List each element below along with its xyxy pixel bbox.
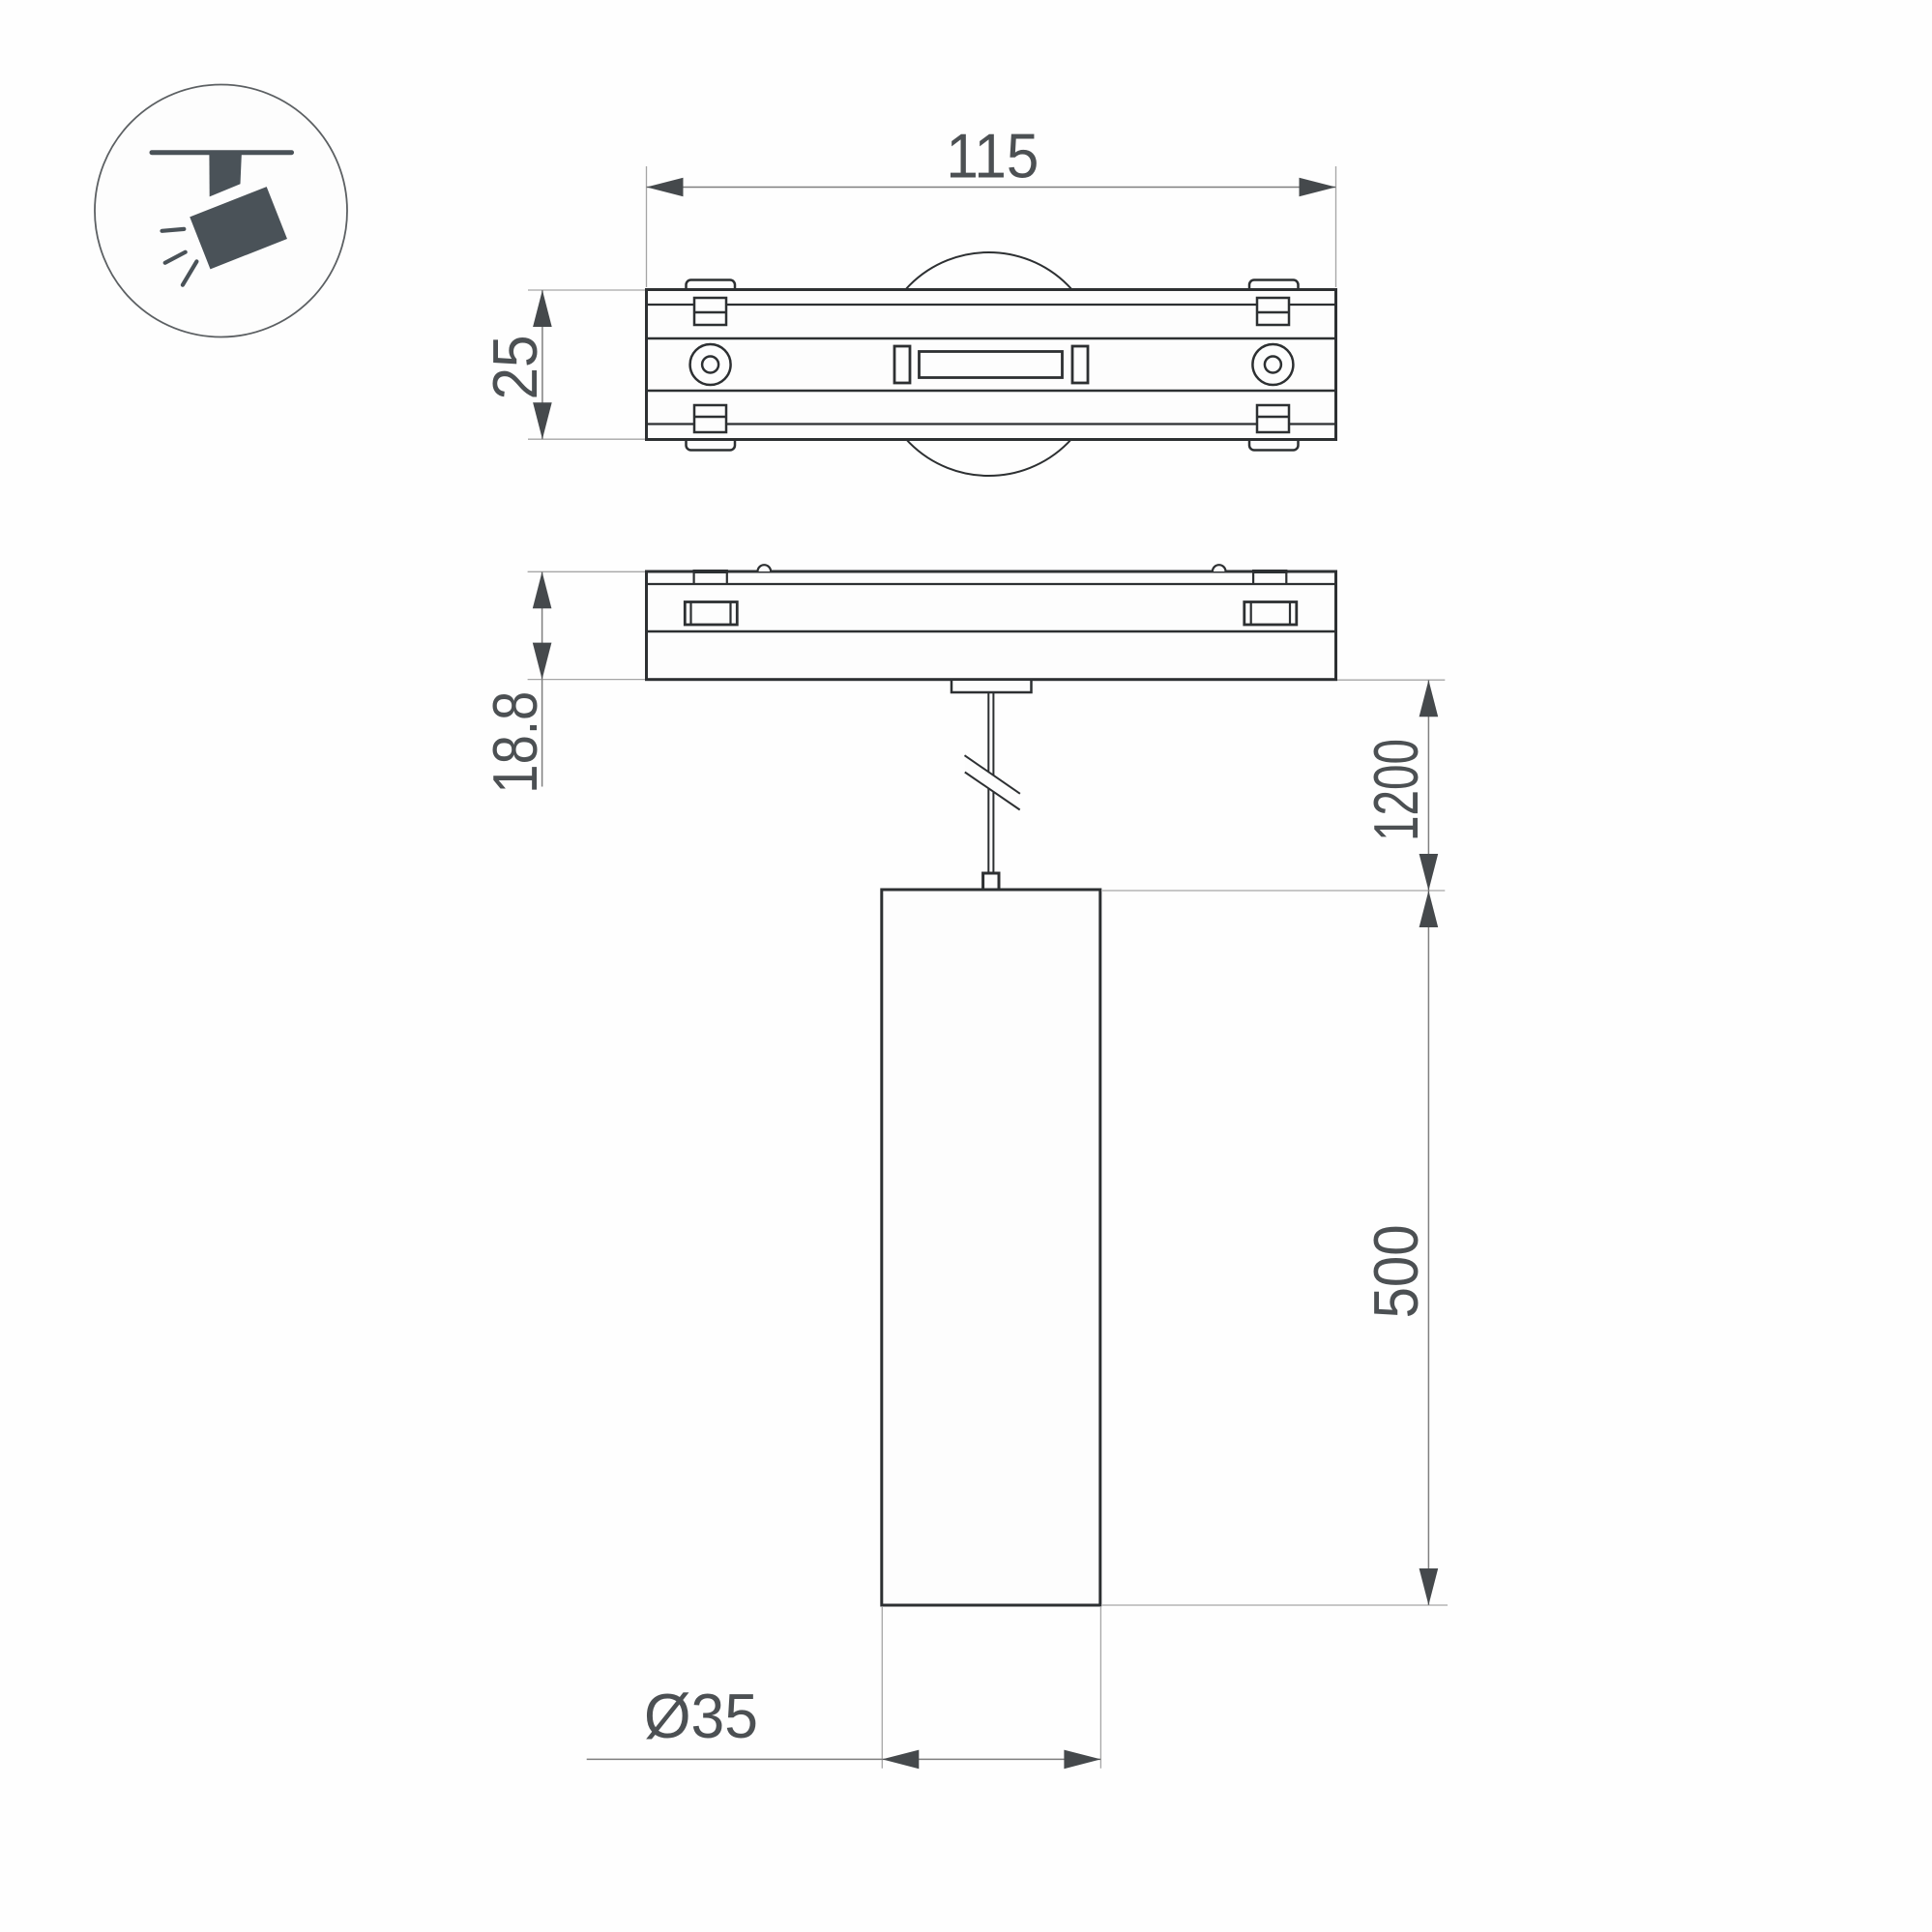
svg-text:18.8: 18.8 bbox=[480, 691, 550, 794]
svg-text:500: 500 bbox=[1361, 1224, 1431, 1318]
svg-text:25: 25 bbox=[480, 336, 550, 400]
svg-text:1200: 1200 bbox=[1361, 739, 1431, 841]
svg-text:115: 115 bbox=[946, 121, 1039, 191]
svg-text:Ø35: Ø35 bbox=[644, 1681, 758, 1751]
